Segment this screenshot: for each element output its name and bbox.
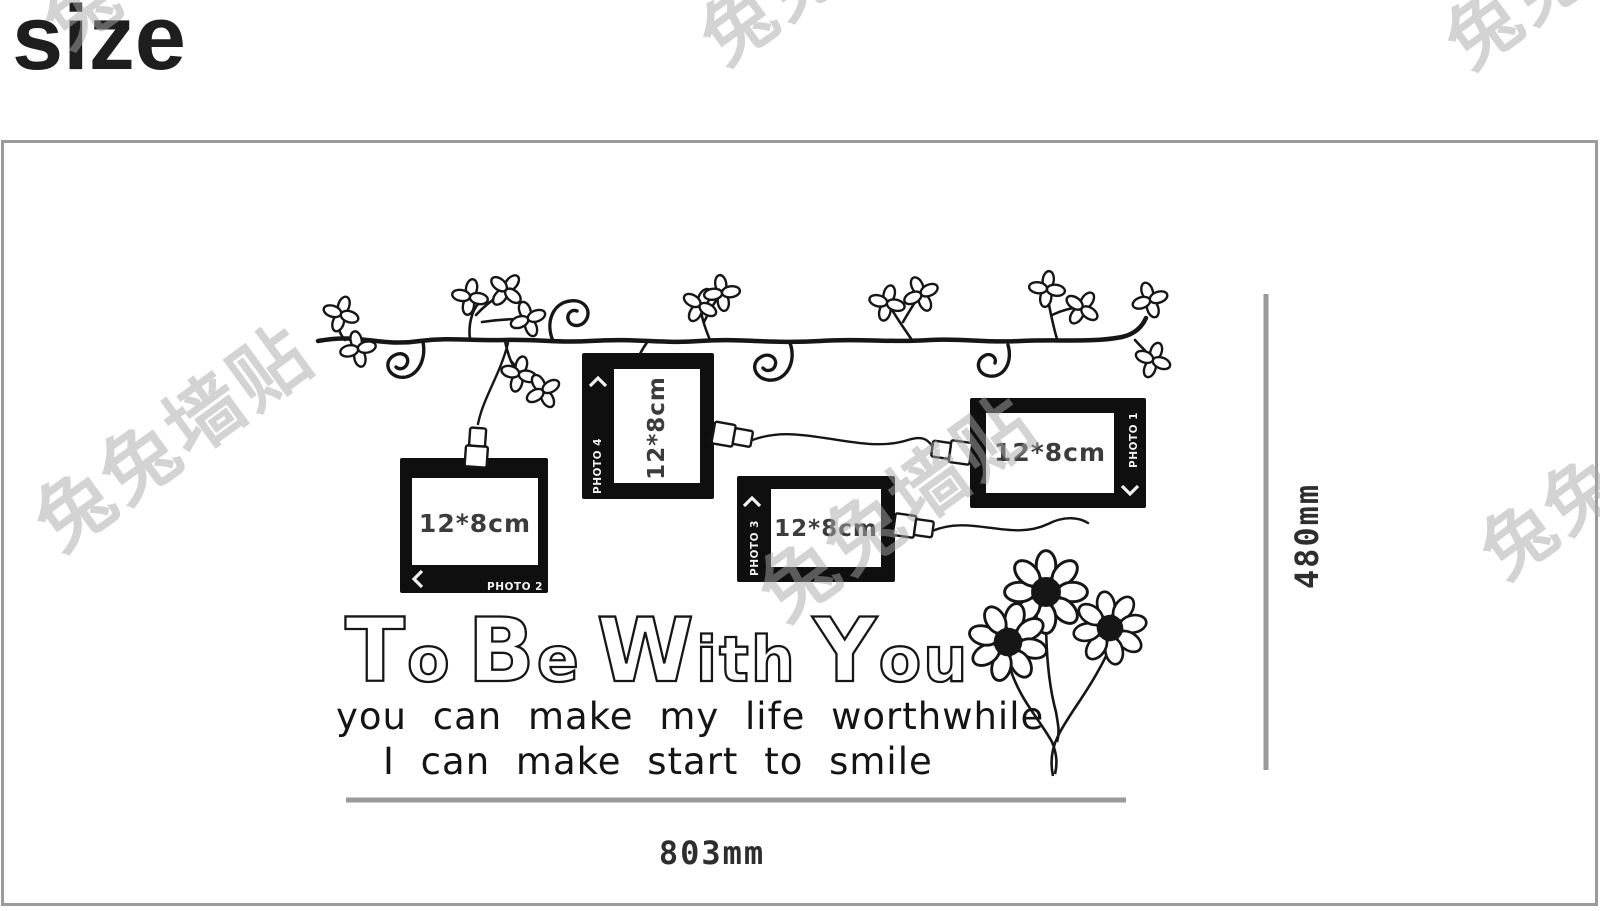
photo-frame-4: 12*8cm PHOTO 4 (582, 353, 754, 499)
photo-frame-2: 12*8cm PHOTO 2 (400, 427, 548, 593)
flower-icon (337, 328, 380, 371)
spiral-icon (388, 342, 424, 377)
height-dimension-label: 480mm (1288, 483, 1326, 589)
flower-icon (318, 291, 363, 336)
flower-icon (865, 281, 909, 325)
photo-tag: PHOTO 4 (592, 438, 604, 494)
flower-icon (1127, 277, 1172, 322)
string-line (932, 518, 1088, 531)
daisy-stem (1046, 618, 1059, 742)
flower-icon (897, 270, 945, 318)
headline-letter: ith (696, 623, 797, 696)
wall-decal-illustration: 12*8cm PHOTO 2 12*8cm PHOTO 4 12*8cm PHO… (0, 0, 1600, 911)
spiral-icon (978, 345, 1009, 376)
string-line (750, 434, 932, 446)
frame-size-label: 12*8cm (644, 376, 670, 480)
clothespin-icon (893, 513, 935, 540)
subtext-line-2: I can make start to smile (383, 740, 933, 783)
vine-stem (318, 318, 1146, 343)
daisy-bouquet (960, 551, 1153, 776)
headline-text: ToBeWithYou (345, 599, 969, 702)
photo-tag: PHOTO 3 (749, 520, 761, 576)
headline-letter: Y (812, 599, 879, 702)
frame-size-label: 12*8cm (774, 516, 878, 542)
headline-letter: e (537, 623, 581, 696)
daisy-stem (1052, 652, 1108, 776)
headline-letter: B (468, 599, 537, 702)
headline-letter: T (345, 599, 407, 702)
frame-size-label: 12*8cm (419, 509, 531, 538)
photo-frame-1: 12*8cm PHOTO 1 (931, 398, 1146, 508)
photo-tag: PHOTO 2 (487, 581, 543, 593)
subtext-line-1: you can make my life worthwhile (336, 695, 1044, 738)
flower-icon (1027, 269, 1068, 310)
headline-letter: W (597, 599, 696, 702)
frame-size-label: 12*8cm (994, 438, 1106, 467)
photo-frame-3: 12*8cm PHOTO 3 (737, 476, 934, 582)
flower-icon (449, 276, 491, 318)
width-dimension-label: 803mm (659, 834, 765, 872)
clothespin-icon (931, 438, 973, 465)
photo-tag: PHOTO 1 (1128, 412, 1140, 468)
headline-letter: ou (879, 623, 970, 696)
headline-letter: o (407, 623, 452, 696)
spiral-icon (755, 343, 792, 380)
clothespin-icon (465, 427, 490, 467)
string-line (478, 343, 508, 424)
spiral-icon (550, 301, 588, 341)
vine-branch (318, 293, 1151, 395)
clothespin-icon (711, 422, 753, 450)
